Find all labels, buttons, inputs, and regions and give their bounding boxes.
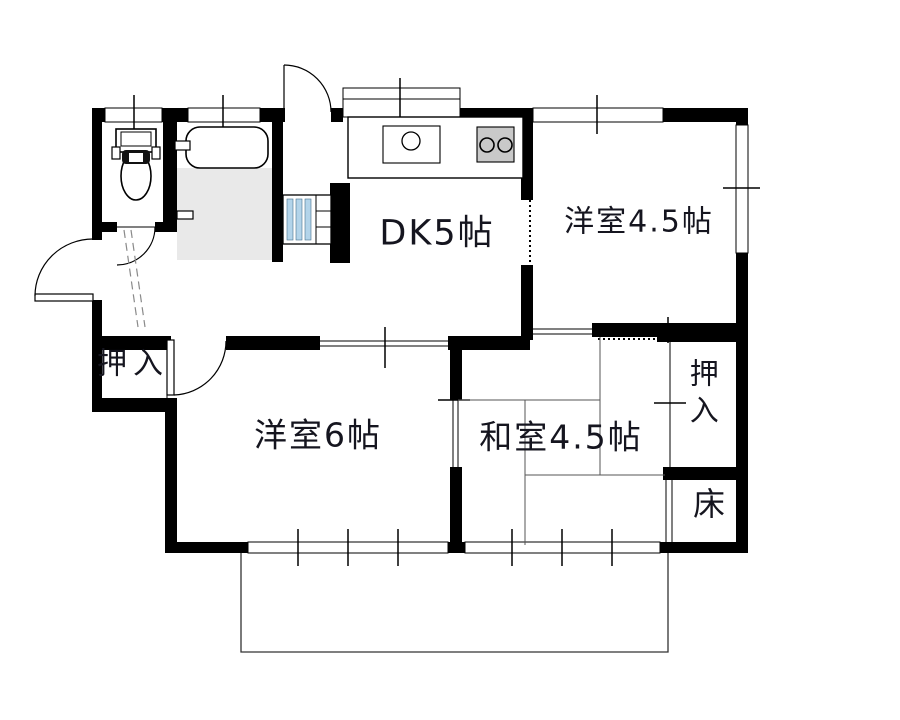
room-label-western-4-5: 洋室4.5帖: [564, 206, 714, 238]
bath-window: [188, 108, 260, 122]
thin-partitions: [117, 227, 672, 542]
kitchen-bay-window: [343, 88, 460, 117]
balcony: [241, 553, 668, 652]
back-door: [284, 65, 331, 112]
toilet-door-swing: [117, 227, 155, 265]
room-label-japanese-4-5: 和室4.5帖: [479, 421, 642, 456]
room-label-tokonoma: 床: [693, 488, 727, 522]
room-label-western-6: 洋室6帖: [254, 419, 382, 454]
entrance-door: [35, 239, 93, 301]
west6-door: [167, 340, 226, 395]
bathtub-icon: [175, 127, 268, 168]
west45-top-window: [533, 108, 663, 122]
bath-floor: [177, 168, 272, 260]
toilet-icon: [112, 129, 160, 200]
bath-door-handle: [177, 211, 193, 219]
kitchen-counter: [348, 117, 523, 178]
floor-plan: DK5帖 洋室4.5帖 洋室6帖 和室4.5帖 押入 押入 床: [0, 0, 900, 720]
room-label-closet-japanese: 押入: [687, 358, 717, 432]
washbasin-icon: [283, 195, 331, 244]
room-label-closet-hall: 押入: [97, 348, 169, 380]
kitchen-sink-icon: [383, 126, 440, 163]
genkan-step: [124, 230, 145, 327]
room-label-dk: DK5帖: [379, 216, 494, 253]
stove-icon: [477, 127, 514, 162]
west45-side-window: [736, 125, 748, 253]
